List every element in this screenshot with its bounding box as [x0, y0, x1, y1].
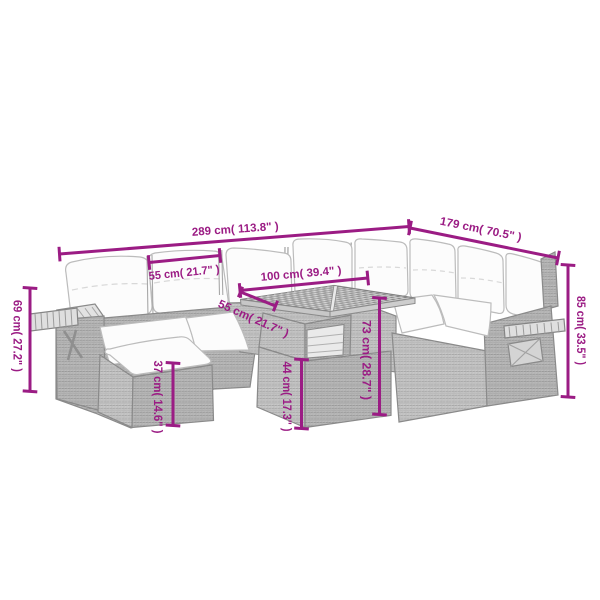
svg-text:69 cm( 27.2" ): 69 cm( 27.2" ) — [11, 300, 23, 372]
svg-text:37 cm( 14.6" ): 37 cm( 14.6" ) — [151, 361, 163, 434]
svg-text:85 cm( 33.5" ): 85 cm( 33.5" ) — [574, 296, 586, 365]
svg-text:73 cm( 28.7" ): 73 cm( 28.7" ) — [360, 320, 372, 400]
svg-text:44 cm( 17.3" ): 44 cm( 17.3" ) — [280, 362, 292, 432]
